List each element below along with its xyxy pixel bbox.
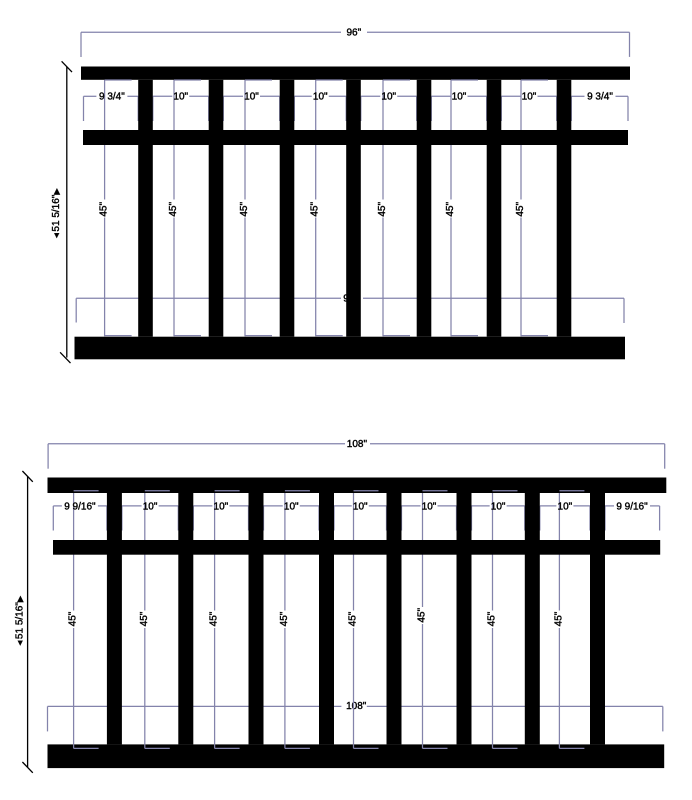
- svg-text:10": 10": [284, 501, 299, 512]
- svg-text:45": 45": [553, 611, 564, 626]
- svg-text:10": 10": [558, 501, 573, 512]
- svg-text:10": 10": [214, 501, 229, 512]
- svg-text:45": 45": [417, 608, 428, 623]
- svg-text:45": 45": [310, 202, 321, 217]
- svg-text:45": 45": [209, 611, 220, 626]
- svg-text:108": 108": [347, 439, 368, 450]
- svg-text:10": 10": [491, 501, 506, 512]
- svg-text:◄51 5/16"▶: ◄51 5/16"▶: [51, 188, 62, 240]
- svg-text:45": 45": [487, 611, 498, 626]
- svg-text:45": 45": [348, 611, 359, 626]
- svg-text:45": 45": [515, 202, 526, 217]
- svg-text:10": 10": [522, 92, 537, 103]
- svg-text:45": 45": [239, 202, 250, 217]
- svg-text:45": 45": [139, 611, 150, 626]
- svg-text:96": 96": [346, 28, 361, 39]
- svg-text:45": 45": [168, 202, 179, 217]
- svg-text:45": 45": [68, 611, 79, 626]
- svg-text:108": 108": [346, 701, 367, 712]
- svg-text:45": 45": [279, 611, 290, 626]
- svg-text:10": 10": [452, 92, 467, 103]
- svg-text:◄51 5/16"▶: ◄51 5/16"▶: [14, 595, 25, 647]
- svg-text:9 3/4": 9 3/4": [99, 92, 125, 103]
- svg-text:9 3/4": 9 3/4": [587, 92, 613, 103]
- svg-text:10": 10": [173, 92, 188, 103]
- svg-text:9 9/16": 9 9/16": [64, 501, 96, 512]
- svg-text:45": 45": [377, 202, 388, 217]
- svg-text:10": 10": [422, 501, 437, 512]
- svg-text:10": 10": [313, 92, 328, 103]
- svg-text:9 9/16": 9 9/16": [616, 501, 648, 512]
- svg-text:45": 45": [99, 202, 110, 217]
- svg-text:10": 10": [244, 92, 259, 103]
- svg-text:10": 10": [381, 92, 396, 103]
- svg-text:10": 10": [143, 501, 158, 512]
- svg-text:45": 45": [445, 202, 456, 217]
- svg-text:10": 10": [353, 501, 368, 512]
